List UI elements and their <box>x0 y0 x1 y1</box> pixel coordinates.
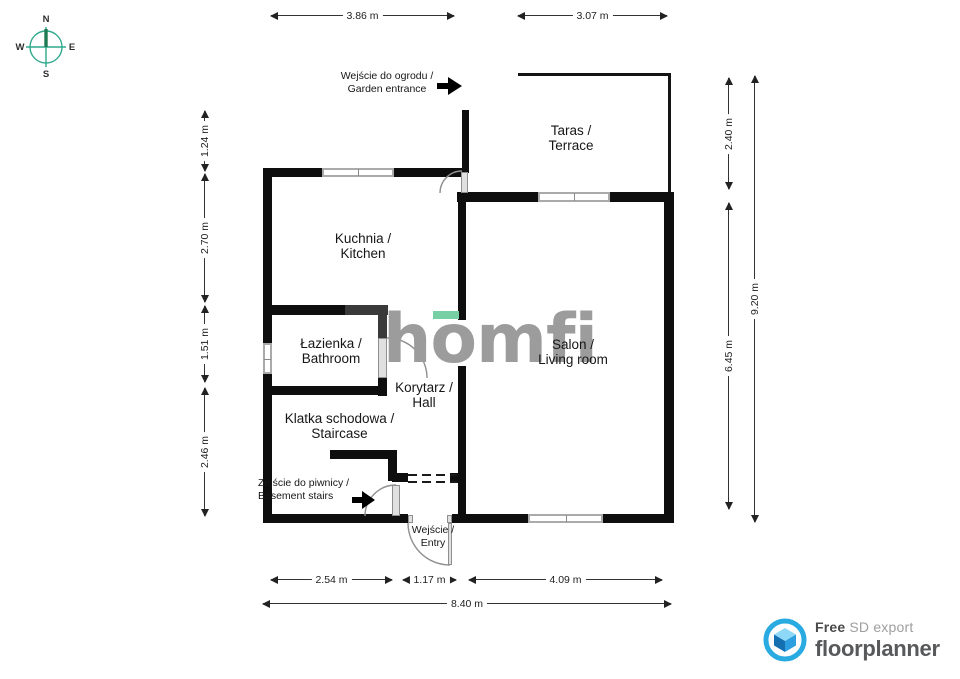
door-terrace-swing-arc <box>440 171 462 193</box>
room-label-line: Klatka schodowa / <box>262 411 417 426</box>
footer-export-label: FreeSD export <box>815 619 940 635</box>
dim-right-terrace: 2.40 m <box>723 77 735 190</box>
garden-entrance-arrow-icon <box>437 77 462 95</box>
annotation-basement-stairs: Zejście do piwnicy / Basement stairs <box>258 477 370 503</box>
dim-label: 1.24 m <box>199 121 211 161</box>
dim-left-3: 1.51 m <box>199 305 211 383</box>
annotation-entry: Wejście / Entry <box>398 524 468 550</box>
dim-label: 9.20 m <box>749 279 761 319</box>
dim-label: 3.07 m <box>572 10 612 22</box>
floorplanner-icon <box>763 618 807 662</box>
dim-top-terrace: 3.07 m <box>517 10 668 22</box>
annotation-line: Wejście do ogrodu / <box>337 70 437 83</box>
dim-bottom-staircase: 2.54 m <box>270 574 393 586</box>
dim-bottom-total: 8.40 m <box>262 598 672 610</box>
dim-right-total: 9.20 m <box>749 75 761 523</box>
annotation-line: Wejście / <box>398 524 468 537</box>
dim-bottom-entry: 1.17 m <box>402 574 457 586</box>
dim-top-kitchen: 3.86 m <box>270 10 455 22</box>
room-label-terrace: Taras / Terrace <box>521 123 621 153</box>
dim-label: 3.86 m <box>342 10 382 22</box>
room-label-line: Łazienka / <box>271 336 391 351</box>
room-label-line: Kitchen <box>303 246 423 261</box>
dim-left-4: 2.46 m <box>199 387 211 517</box>
room-label-bathroom: Łazienka / Bathroom <box>271 336 391 366</box>
dim-left-2: 2.70 m <box>199 173 211 303</box>
room-label-line: Staircase <box>262 426 417 441</box>
dim-left-1: 1.24 m <box>199 110 211 172</box>
floorplanner-logo: FreeSD export floorplanner <box>763 618 940 662</box>
room-label-line: Kuchnia / <box>303 231 423 246</box>
footer-brand-name: floorplanner <box>815 636 940 662</box>
dim-label: 1.51 m <box>199 324 211 364</box>
room-label-line: Korytarz / <box>374 380 474 395</box>
room-label-living-room: Salon / Living room <box>513 337 633 367</box>
room-label-line: Hall <box>374 395 474 410</box>
dim-label: 6.45 m <box>723 336 735 376</box>
room-label-hall: Korytarz / Hall <box>374 380 474 410</box>
room-label-kitchen: Kuchnia / Kitchen <box>303 231 423 261</box>
homfi-watermark-accent-bar <box>433 311 459 319</box>
room-label-line: Living room <box>513 352 633 367</box>
room-label-line: Taras / <box>521 123 621 138</box>
dim-label: 2.54 m <box>311 574 351 586</box>
annotation-garden-entrance: Wejście do ogrodu / Garden entrance <box>337 70 437 96</box>
room-label-line: Bathroom <box>271 351 391 366</box>
dim-right-salon: 6.45 m <box>723 202 735 510</box>
dim-label: 1.17 m <box>409 574 449 586</box>
dim-label: 8.40 m <box>447 598 487 610</box>
dim-label: 2.40 m <box>723 113 735 153</box>
room-label-line: Salon / <box>513 337 633 352</box>
room-label-line: Terrace <box>521 138 621 153</box>
annotation-line: Entry <box>398 537 468 550</box>
annotation-line: Basement stairs <box>258 490 370 503</box>
dim-label: 2.46 m <box>199 432 211 472</box>
dim-label: 4.09 m <box>545 574 585 586</box>
room-label-staircase: Klatka schodowa / Staircase <box>262 411 417 441</box>
annotation-line: Garden entrance <box>337 83 437 96</box>
annotation-line: Zejście do piwnicy / <box>258 477 370 490</box>
floorplan-export-page: N E S W 3.86 m 3.07 m 1.24 m 2.70 m 1.51… <box>0 0 960 679</box>
footer-sd-export-label: SD export <box>849 619 913 635</box>
dim-label: 2.70 m <box>199 218 211 258</box>
footer-free-label: Free <box>815 619 845 635</box>
dim-bottom-salon: 4.09 m <box>468 574 663 586</box>
